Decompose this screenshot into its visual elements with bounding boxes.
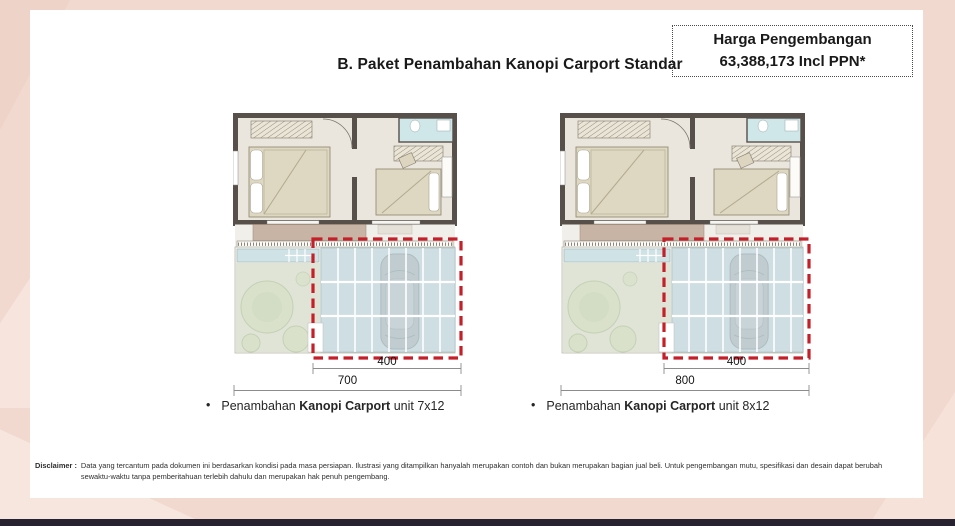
caption-suffix: unit 8x12: [715, 399, 769, 413]
caption-bold: Kanopi Carport: [624, 399, 715, 413]
dimension-outer: 800: [675, 375, 694, 387]
plan-caption-8x12: •Penambahan Kanopi Carport unit 8x12: [531, 399, 769, 413]
edge-decoration-left: [0, 278, 30, 408]
price-label: Harga Pengembangan: [673, 29, 912, 52]
slide: B. Paket Penambahan Kanopi Carport Stand…: [0, 0, 955, 526]
bullet-icon: •: [206, 398, 210, 412]
disclaimer-text: Data yang tercantum pada dokumen ini ber…: [81, 461, 913, 482]
price-box: Harga Pengembangan 63,388,173 Incl PPN*: [672, 25, 913, 77]
caption-text: Penambahan: [221, 399, 299, 413]
footer-bar: [0, 519, 955, 526]
content-card: B. Paket Penambahan Kanopi Carport Stand…: [30, 10, 923, 498]
bullet-icon: •: [531, 398, 535, 412]
disclaimer: Disclaimer : Data yang tercantum pada do…: [35, 461, 913, 482]
plan-caption-7x12: •Penambahan Kanopi Carport unit 7x12: [206, 399, 444, 413]
floorplan-svg-8x12: 400800: [560, 113, 811, 399]
dimension-inner: 400: [377, 356, 396, 368]
disclaimer-label: Disclaimer :: [35, 461, 77, 482]
floorplan-8x12: 400800: [560, 113, 811, 404]
caption-suffix: unit 7x12: [390, 399, 444, 413]
dimension-outer: 700: [338, 375, 357, 387]
caption-text: Penambahan: [546, 399, 624, 413]
dimension-inner: 400: [727, 356, 746, 368]
floorplan-svg-7x12: 400700: [233, 113, 463, 399]
floorplan-7x12: 400700: [233, 113, 463, 404]
price-value: 63,388,173 Incl PPN*: [673, 51, 912, 74]
caption-bold: Kanopi Carport: [299, 399, 390, 413]
